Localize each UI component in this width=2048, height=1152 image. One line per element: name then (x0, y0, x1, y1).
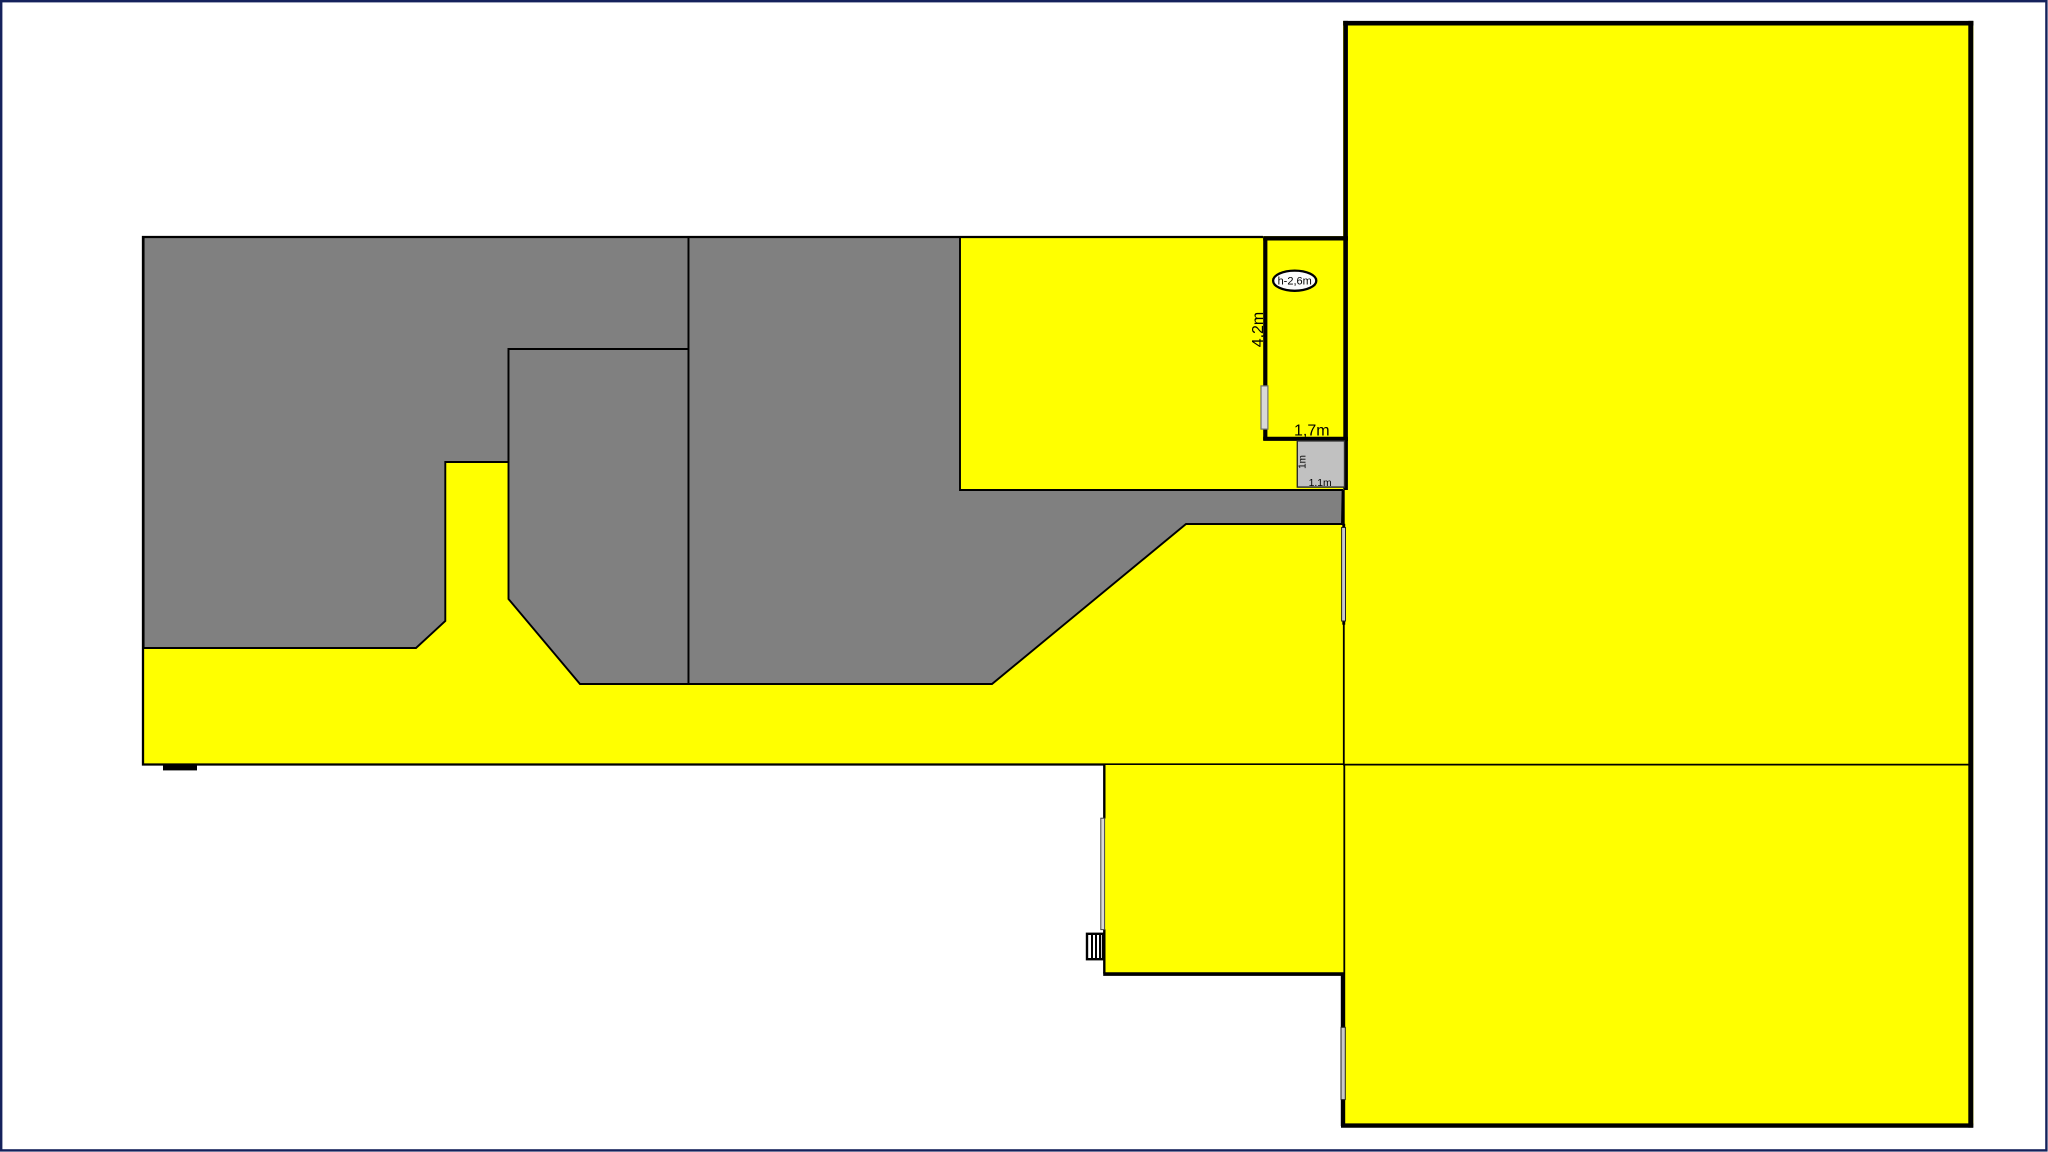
svg-text:1.1m: 1.1m (1309, 478, 1332, 489)
svg-text:4,2m: 4,2m (1250, 312, 1267, 348)
svg-text:h-2,6m: h-2,6m (1278, 275, 1312, 287)
svg-text:1,7m: 1,7m (1294, 422, 1330, 439)
svg-text:1m: 1m (1298, 455, 1309, 469)
